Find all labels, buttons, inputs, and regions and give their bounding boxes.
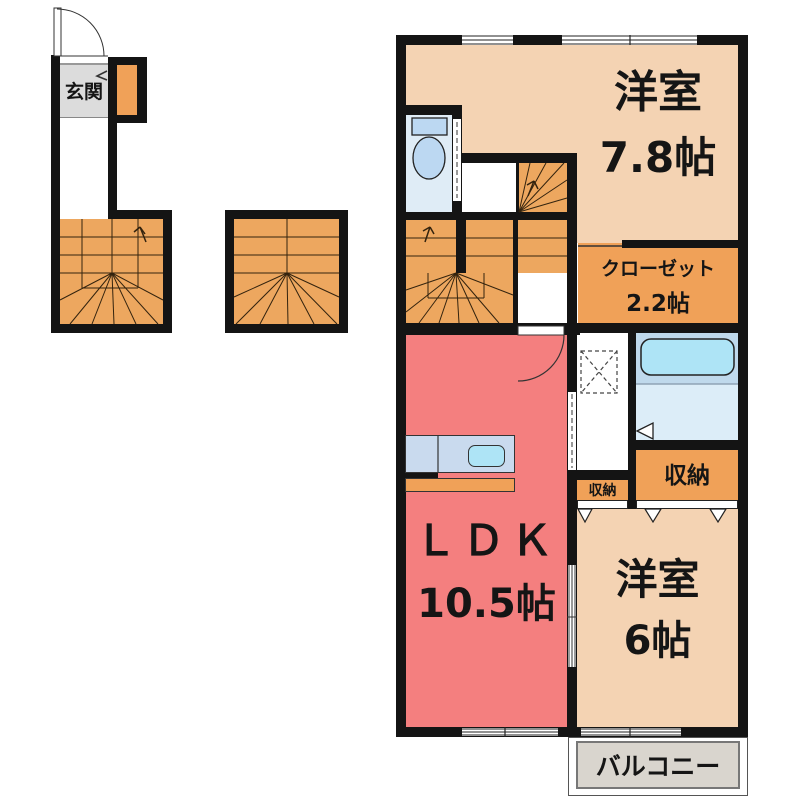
unit-bottom-wall (396, 727, 748, 737)
unit-top-wall (396, 35, 748, 45)
ldk-size: 10.5帖 (406, 573, 567, 635)
stairs1-floor (60, 219, 163, 324)
stair-band-mid (466, 220, 513, 273)
closet-slider-right (636, 500, 738, 509)
stairs2-floor (234, 219, 339, 324)
bedroom2-size: 6帖 (577, 611, 738, 671)
closet-name: クローゼット (601, 258, 715, 280)
washroom-bottom-wall (628, 440, 748, 450)
room-label-closet: クローゼット 2.2帖 (578, 253, 738, 324)
closet-slider-left (577, 500, 628, 509)
bath-top-wall (577, 323, 748, 333)
toilet-floor (406, 115, 452, 212)
shoe-cabinet (117, 65, 137, 115)
stair-fan-upper (518, 163, 567, 213)
room-label-bedroom2: 洋室 6帖 (577, 548, 738, 671)
main-vertical-wall (567, 153, 577, 727)
stair-band-left (406, 220, 456, 273)
stairwell-mid-bar (406, 212, 577, 220)
kitchen-base-strip (405, 478, 515, 492)
stair-landing-upper (462, 163, 516, 212)
stairwell-top-wall (452, 153, 577, 163)
corridor-bottom-wall (577, 470, 628, 480)
entrance-door-arc (54, 8, 108, 64)
stairs1-right-wall (163, 210, 172, 333)
unit-right-wall (738, 35, 748, 737)
ldk-name: ＬＤＫ (414, 516, 558, 565)
stair-band-right (518, 220, 567, 273)
hall-corridor-floor (577, 333, 628, 470)
room-label-storage-bedroom: 収納 (636, 461, 738, 492)
bath-floor (636, 333, 738, 384)
bedroom1-name: 洋室 (614, 67, 702, 118)
bedroom1-size: 7.8帖 (578, 126, 738, 189)
corridor-bath-wall (628, 333, 636, 509)
corridor-wall (108, 57, 117, 219)
stair-landing-lower (518, 273, 567, 323)
stair-divider-wall (513, 220, 518, 323)
stair-newel-wall (456, 220, 466, 273)
room-label-storage-hall: 収納 (577, 482, 628, 501)
fan-landing-divider (516, 163, 519, 213)
stairs1-bottom-wall (51, 324, 172, 333)
bedroom2-name: 洋室 (615, 555, 699, 604)
ldk-top-wall (396, 323, 580, 335)
unit-left-wall (396, 35, 406, 737)
room-label-balcony: バルコニー (576, 750, 740, 784)
stair-winder-lower (406, 273, 513, 323)
room-label-bedroom1: 洋室 7.8帖 (578, 60, 738, 189)
floor-plan: 玄関 洋室 7.8帖 クローゼット 2.2帖 ＬＤＫ 10.5帖 収納 収納 洋… (0, 0, 800, 800)
kitchen-sink-icon (468, 445, 505, 467)
left-wall-entry (51, 55, 60, 333)
closet-top-wall (622, 240, 738, 248)
washroom-floor (636, 384, 738, 440)
room-label-ldk: ＬＤＫ 10.5帖 (406, 508, 567, 635)
room-label-genkan: 玄関 (60, 80, 108, 106)
closet-size: 2.2帖 (578, 285, 738, 324)
